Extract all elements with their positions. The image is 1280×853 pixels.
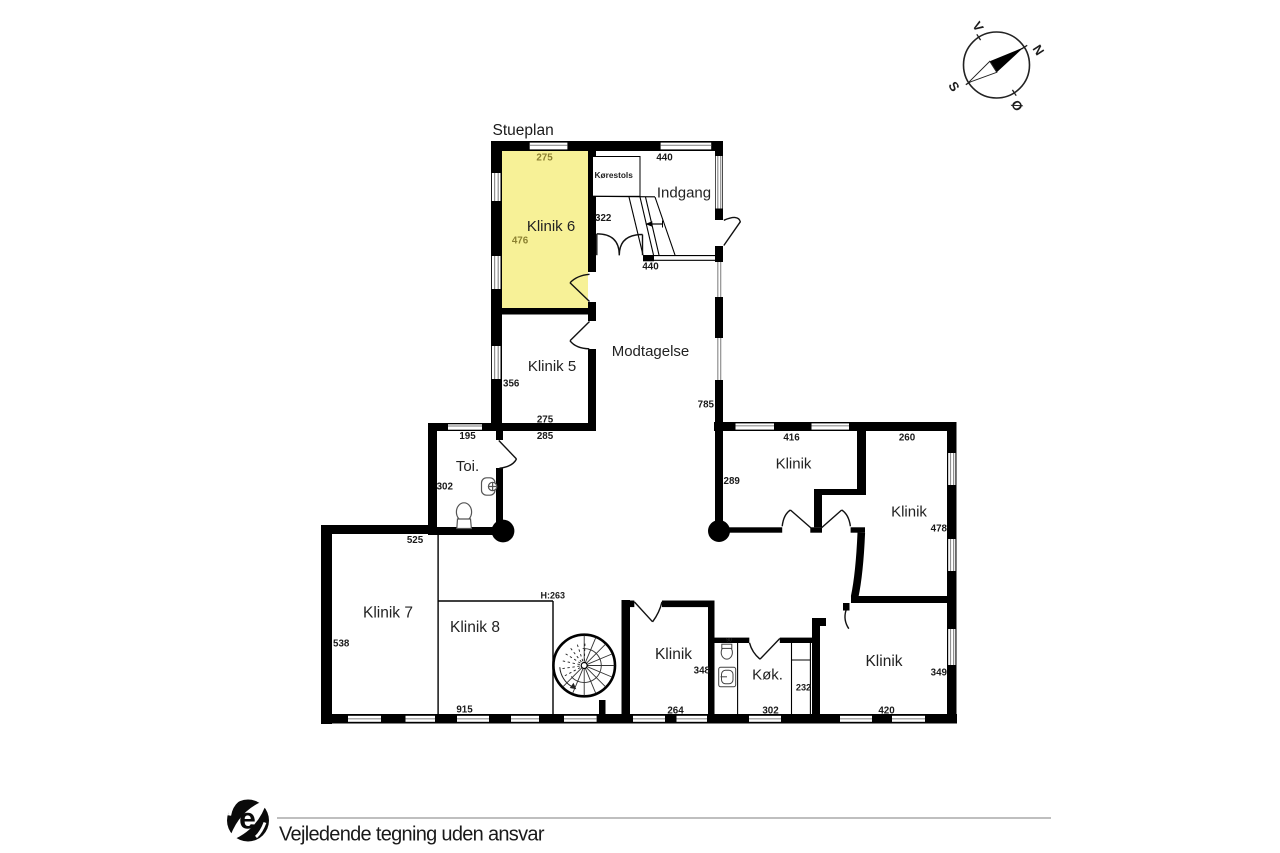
- svg-text:264: 264: [667, 706, 684, 717]
- svg-text:322: 322: [595, 213, 612, 224]
- svg-text:275: 275: [537, 415, 554, 426]
- svg-text:Klinik 7: Klinik 7: [363, 605, 413, 622]
- svg-text:V: V: [969, 19, 986, 35]
- svg-text:Indgang: Indgang: [657, 184, 711, 201]
- svg-text:356: 356: [503, 379, 520, 390]
- svg-text:289: 289: [724, 476, 741, 487]
- svg-text:N: N: [1030, 42, 1048, 58]
- svg-text:Modtagelse: Modtagelse: [612, 343, 690, 360]
- svg-text:Klinik: Klinik: [891, 503, 927, 520]
- svg-text:H:263: H:263: [540, 591, 565, 601]
- svg-text:525: 525: [407, 535, 424, 546]
- svg-text:440: 440: [642, 262, 659, 273]
- svg-text:Klinik 6: Klinik 6: [527, 218, 575, 235]
- svg-text:Ø: Ø: [1008, 97, 1026, 114]
- svg-text:232: 232: [796, 683, 811, 693]
- svg-text:Klinik: Klinik: [776, 455, 812, 472]
- svg-text:Klinik 8: Klinik 8: [450, 619, 500, 636]
- svg-text:Køk.: Køk.: [752, 666, 783, 683]
- svg-text:285: 285: [537, 431, 554, 442]
- svg-text:260: 260: [899, 433, 916, 444]
- svg-text:Klinik: Klinik: [865, 653, 902, 670]
- svg-text:Klinik: Klinik: [655, 646, 692, 663]
- svg-text:416: 416: [783, 433, 800, 444]
- svg-text:349: 349: [931, 668, 948, 679]
- svg-text:Klinik 5: Klinik 5: [528, 358, 576, 375]
- svg-text:476: 476: [512, 236, 529, 247]
- svg-text:195: 195: [459, 431, 476, 442]
- svg-text:420: 420: [878, 706, 895, 717]
- svg-text:Kørestols: Kørestols: [595, 170, 634, 180]
- svg-text:275: 275: [536, 152, 553, 163]
- svg-text:538: 538: [333, 639, 350, 650]
- svg-text:478: 478: [931, 523, 948, 534]
- svg-text:Toi.: Toi.: [456, 458, 479, 475]
- svg-text:785: 785: [698, 400, 715, 411]
- svg-text:302: 302: [437, 482, 454, 493]
- svg-text:90: 90: [726, 638, 732, 644]
- svg-text:Stueplan: Stueplan: [493, 122, 554, 139]
- svg-text:915: 915: [456, 705, 473, 716]
- svg-text:Vejledende tegning uden ansvar: Vejledende tegning uden ansvar: [279, 824, 545, 846]
- svg-text:440: 440: [656, 152, 673, 163]
- svg-text:e: e: [239, 803, 256, 836]
- svg-text:348: 348: [694, 665, 711, 676]
- svg-text:302: 302: [762, 706, 779, 717]
- svg-text:S: S: [945, 79, 962, 95]
